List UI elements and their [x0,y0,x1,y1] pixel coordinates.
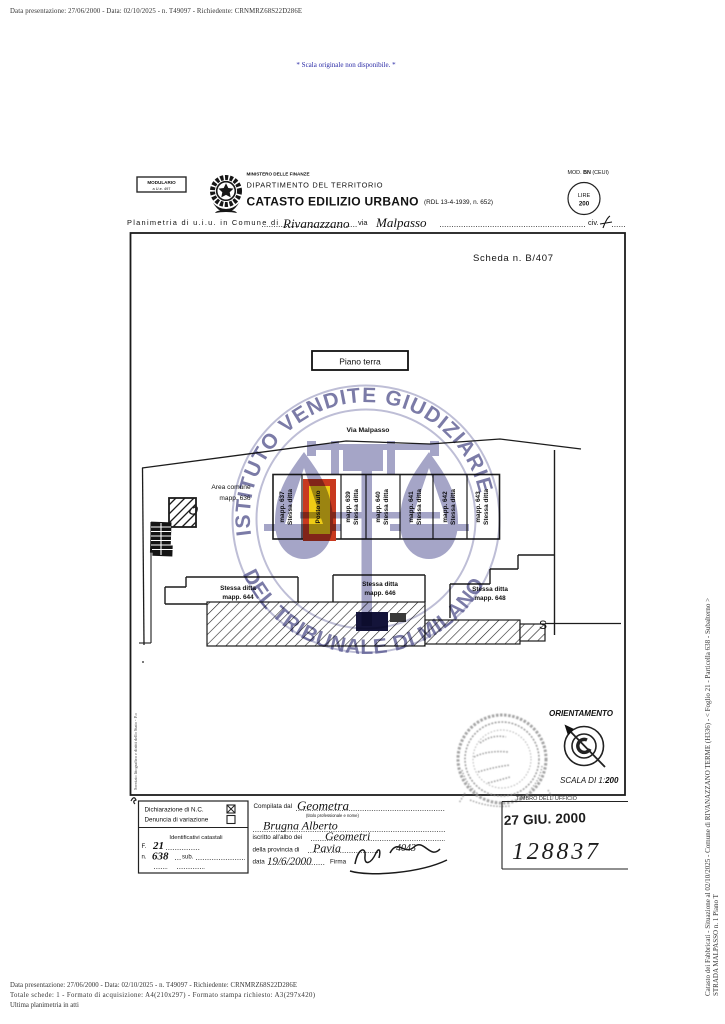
svg-text:Planimetria di u.i.u. in C: Planimetria di u.i.u. in Comune di [127,218,278,227]
svg-text:data: data [253,859,266,866]
svg-text:Malpasso: Malpasso [375,215,427,230]
svg-text:Catasto dei Fabbricati - Situa: Catasto dei Fabbricati - Situazione al 0… [704,598,712,996]
svg-text:27 GIU. 2000: 27 GIU. 2000 [504,810,586,828]
svg-text:MODULARIO: MODULARIO [147,180,176,185]
svg-text:* Scala originale non disponib: * Scala originale non disponibile. * [296,61,396,69]
svg-text:Pavia: Pavia [312,841,341,855]
svg-text:Data presentazione: 27/06/2000: Data presentazione: 27/06/2000 - Data: 0… [10,8,302,15]
svg-text:via: via [358,218,368,227]
svg-text:Dichiarazione di N.C.: Dichiarazione di N.C. [145,807,204,814]
svg-text:STRADA MALPASSO n. 1 Piano T: STRADA MALPASSO n. 1 Piano T [712,893,720,996]
svg-text:sub.: sub. [182,855,194,861]
svg-text:iscritto all’albo dei: iscritto all’albo dei [253,834,303,841]
svg-text:Identificativi catastali: Identificativi catastali [169,835,222,841]
svg-text:200: 200 [579,201,590,208]
svg-text:della provincia di: della provincia di [253,847,300,854]
svg-text:128837: 128837 [512,839,601,865]
svg-text:Servizio litografico e diritti: Servizio litografico e diritti dello Sta… [133,712,138,790]
svg-text:Rivanazzano: Rivanazzano [282,216,350,231]
svg-text:n.: n. [142,855,147,861]
svg-text:638: 638 [152,851,169,863]
svg-text:S: S [539,618,547,632]
svg-text:MINISTERO DELLE FINANZE: MINISTERO DELLE FINANZE [247,172,310,177]
svg-text:LIRE: LIRE [578,193,591,199]
svg-text:TIMBRO DELL’ UFFICIO: TIMBRO DELL’ UFFICIO [516,796,578,802]
svg-text:Stessa ditta: Stessa ditta [383,489,390,525]
svg-text:a U.e. 497: a U.e. 497 [153,186,171,191]
svg-text:Totale schede: 1 - Formato di: Totale schede: 1 - Formato di acquisizio… [10,992,315,999]
svg-text:(RDL 13-4-1939, n. 652): (RDL 13-4-1939, n. 652) [424,199,493,206]
svg-text:ORIENTAMENTO: ORIENTAMENTO [549,709,614,718]
svg-text:(titolo professionale e nome): (titolo professionale e nome) [306,813,359,818]
svg-text:19/6/2000: 19/6/2000 [267,856,312,868]
svg-text:SCALA DI 1:200: SCALA DI 1:200 [560,776,619,785]
svg-text:Firma: Firma [330,859,347,866]
svg-text:Piano terra: Piano terra [339,357,381,367]
svg-text:Stessa ditta: Stessa ditta [353,489,360,525]
svg-text:Via Malpasso: Via Malpasso [347,427,390,434]
svg-text:Stessa ditta: Stessa ditta [483,489,490,525]
svg-text:Scheda n. B/407: Scheda n. B/407 [473,253,553,264]
svg-text:Data presentazione: 27/06/2000: Data presentazione: 27/06/2000 - Data: 0… [10,982,297,989]
svg-text:Ultima planimetria in atti: Ultima planimetria in atti [10,1002,79,1009]
svg-text:civ.: civ. [588,218,599,227]
svg-text:CATASTO EDILIZIO URBANO: CATASTO EDILIZIO URBANO [247,195,419,209]
svg-text:Geometra: Geometra [297,798,349,813]
svg-text:F.: F. [142,844,147,850]
svg-text:Compilata dal: Compilata dal [254,803,293,810]
svg-text:Denuncia di variazione: Denuncia di variazione [145,817,209,824]
svg-text:DIPARTIMENTO DEL TERRITORIO: DIPARTIMENTO DEL TERRITORIO [247,181,383,190]
svg-text:MOD. BN (CEUI): MOD. BN (CEUI) [568,170,610,176]
